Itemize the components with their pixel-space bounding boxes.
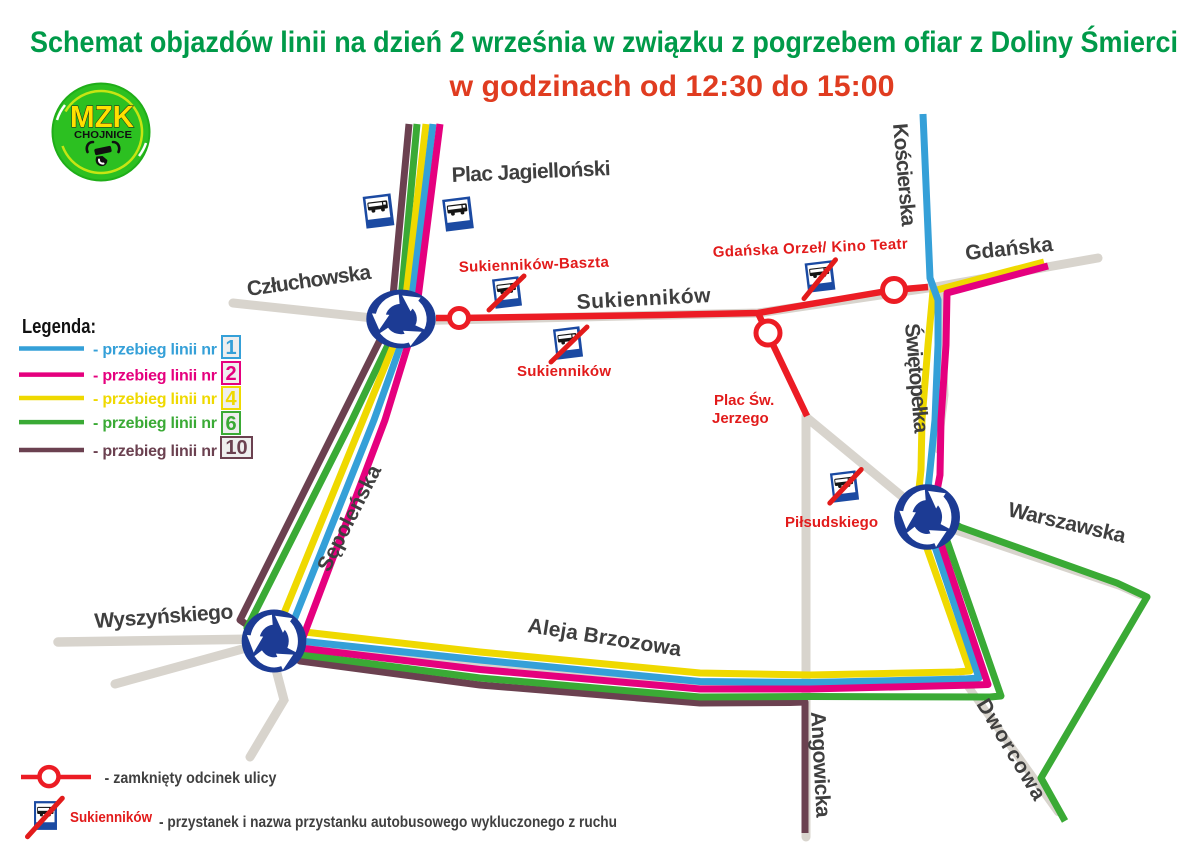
svg-text:Sukienników: Sukienników [70, 809, 152, 826]
svg-text:Sukienników-Baszta: Sukienników-Baszta [459, 254, 610, 276]
svg-text:Sukienników: Sukienników [576, 284, 712, 314]
svg-text:- przebieg linii nr: - przebieg linii nr [93, 342, 217, 359]
svg-text:Plac Jagielloński: Plac Jagielloński [451, 157, 611, 187]
svg-text:Aleja Brzozowa: Aleja Brzozowa [526, 614, 683, 661]
svg-text:Dworcowa: Dworcowa [972, 695, 1051, 805]
svg-text:Człuchowska: Człuchowska [245, 261, 372, 301]
svg-text:Kościerska: Kościerska [888, 122, 920, 227]
svg-text:- zamknięty odcinek ulicy: - zamknięty odcinek ulicy [105, 770, 277, 787]
svg-text:4: 4 [225, 388, 237, 410]
svg-text:- przystanek i nazwa przystank: - przystanek i nazwa przystanku autobuso… [159, 814, 617, 831]
svg-text:Legenda:: Legenda: [22, 316, 96, 338]
svg-text:1: 1 [225, 337, 236, 359]
svg-text:CHOJNICE: CHOJNICE [74, 129, 132, 141]
svg-text:10: 10 [225, 437, 247, 459]
svg-text:2: 2 [225, 363, 236, 385]
svg-text:- przebieg linii nr: - przebieg linii nr [93, 443, 217, 460]
svg-text:Piłsudskiego: Piłsudskiego [785, 514, 878, 531]
svg-text:- przebieg linii nr: - przebieg linii nr [93, 415, 217, 432]
svg-text:Gdańska Orzeł/ Kino Teatr: Gdańska Orzeł/ Kino Teatr [712, 235, 908, 260]
svg-text:Sukienników: Sukienników [517, 363, 611, 380]
svg-text:- przebieg linii nr: - przebieg linii nr [93, 368, 217, 385]
svg-text:- przebieg linii nr: - przebieg linii nr [93, 391, 217, 408]
svg-text:Plac Św.: Plac Św. [714, 391, 774, 409]
svg-text:Wyszyńskiego: Wyszyńskiego [94, 600, 234, 633]
svg-text:Warszawska: Warszawska [1006, 498, 1128, 547]
svg-text:6: 6 [225, 413, 236, 435]
svg-text:Schemat objazdów linii na dzie: Schemat objazdów linii na dzień 2 wrześn… [30, 25, 1178, 59]
svg-text:w godzinach od 12:30 do 15:00: w godzinach od 12:30 do 15:00 [448, 70, 894, 103]
svg-text:Jerzego: Jerzego [712, 410, 769, 427]
